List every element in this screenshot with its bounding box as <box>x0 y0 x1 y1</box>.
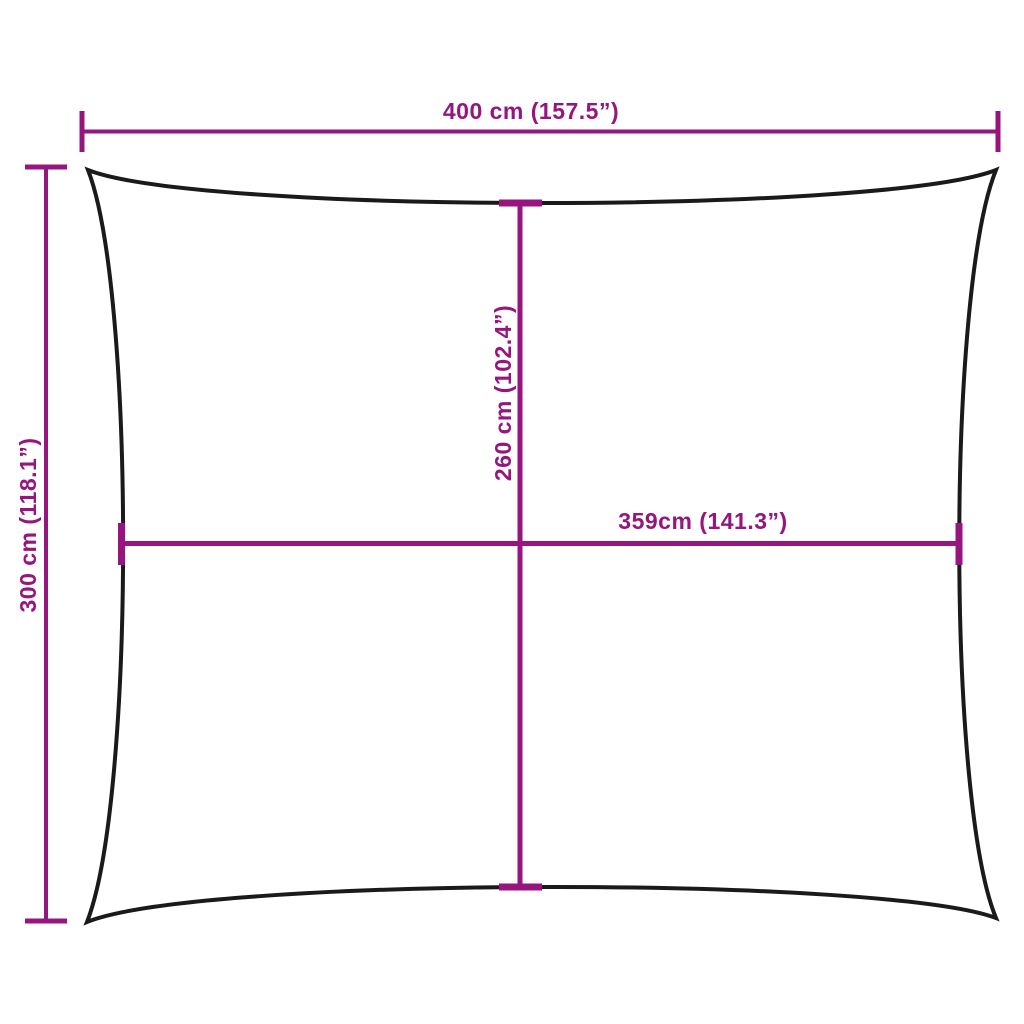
diagram-canvas: 400 cm (157.5”) 300 cm (118.1”) 260 cm (… <box>0 0 1024 1024</box>
dimension-diagram: 400 cm (157.5”) 300 cm (118.1”) 260 cm (… <box>0 0 1024 1024</box>
center-width-label: 359cm (141.3”) <box>618 508 787 534</box>
top-width-label: 400 cm (157.5”) <box>443 98 619 124</box>
center-width-dimension <box>121 523 959 565</box>
center-height-label: 260 cm (102.4”) <box>490 305 516 481</box>
left-height-label: 300 cm (118.1”) <box>15 437 41 612</box>
